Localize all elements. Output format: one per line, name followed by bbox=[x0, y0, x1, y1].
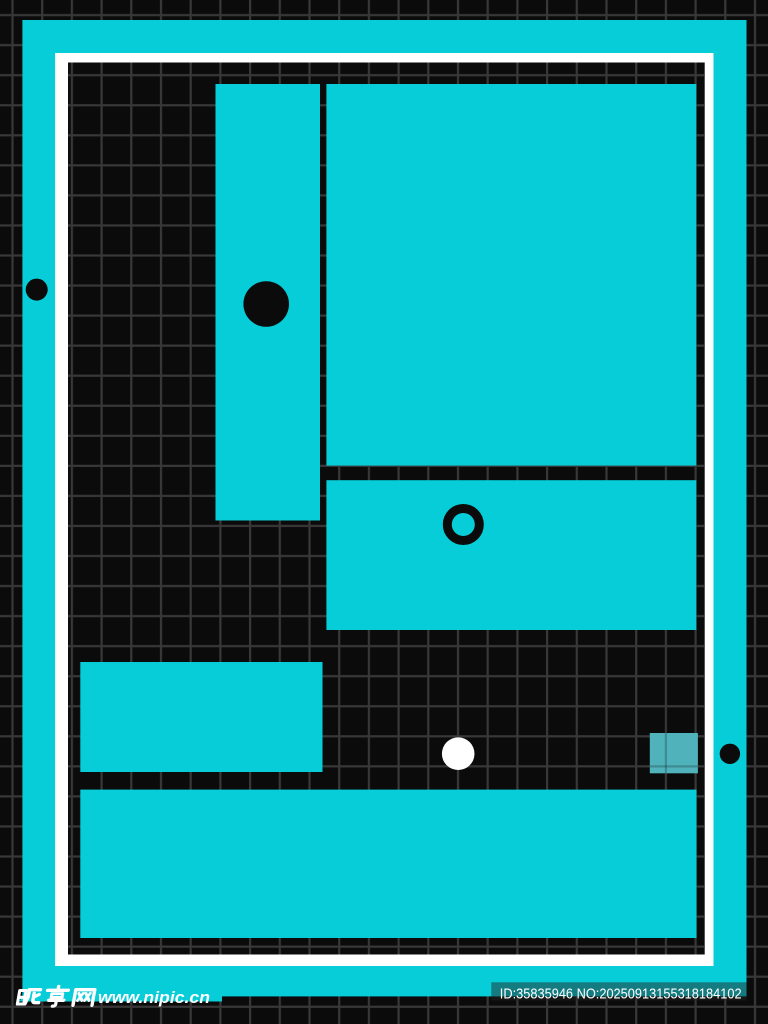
svg-text:ID:35835946 NO:202509131553181: ID:35835946 NO:20250913155318184102 bbox=[500, 986, 742, 1002]
svg-text:www.nipic.cn: www.nipic.cn bbox=[98, 989, 210, 1007]
